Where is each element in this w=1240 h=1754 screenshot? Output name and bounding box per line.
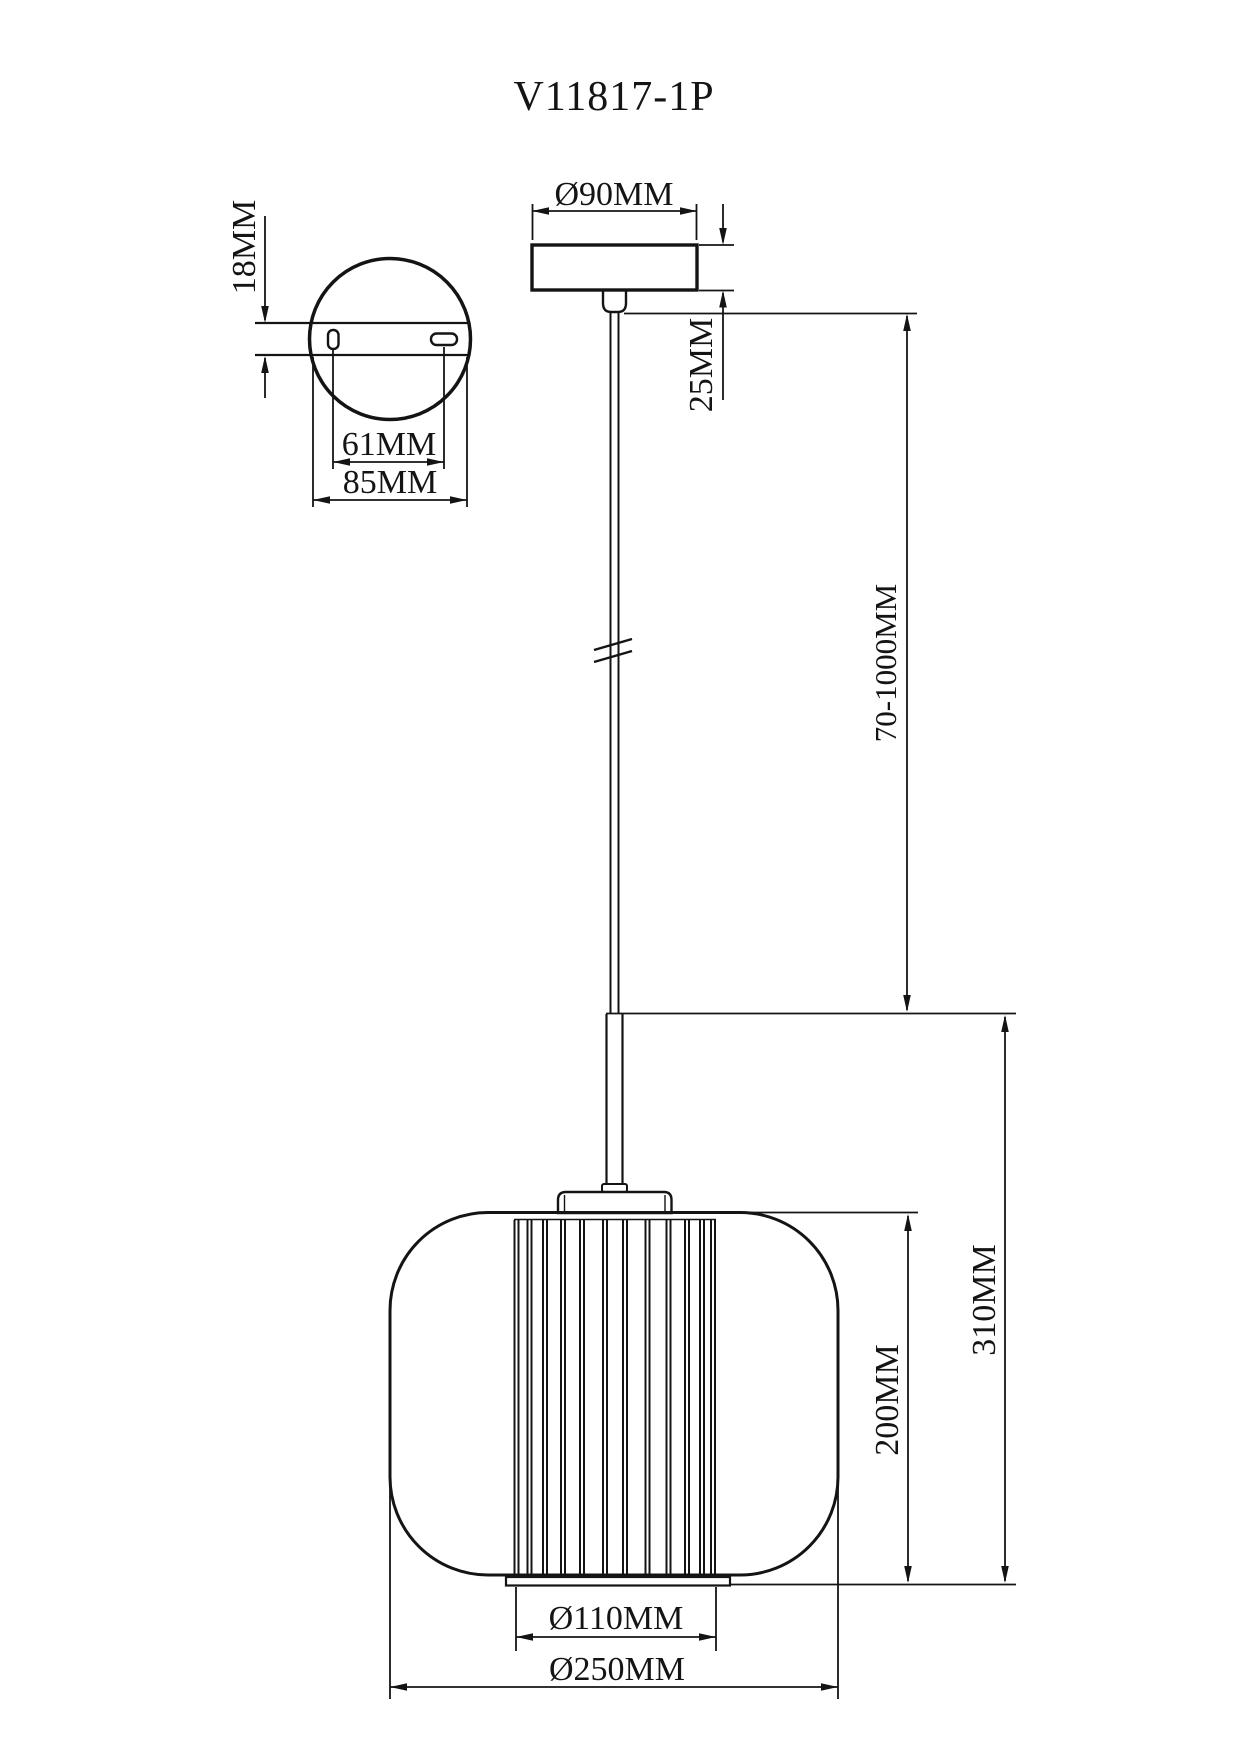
rod-break-mark-upper <box>594 639 632 650</box>
dim-label-shade-diameter: Ø250MM <box>549 1651 685 1688</box>
dim-label-canopy-diameter: Ø90MM <box>554 176 673 213</box>
dim-arrowhead <box>904 1566 912 1583</box>
dim-arrowhead <box>390 1683 407 1691</box>
canopy-stem-connector <box>603 290 626 312</box>
canopy-body <box>532 245 697 290</box>
dim-label-canopy-height: 25MM <box>683 318 720 412</box>
dim-label-plate-thickness: 18MM <box>226 200 263 294</box>
rod-break-mark-lower <box>594 651 632 662</box>
dim-arrowhead <box>904 1214 912 1231</box>
cylinder-bottom-rim <box>506 1577 730 1586</box>
dim-arrowhead <box>719 291 727 308</box>
dim-arrowhead <box>680 207 697 215</box>
shade-outline <box>390 1213 838 1576</box>
dim-label-inner-diameter: Ø110MM <box>549 1600 684 1637</box>
dim-arrowhead <box>313 496 330 504</box>
dim-label-slot-spacing: 61MM <box>342 426 436 463</box>
dim-label-glass-height: 200MM <box>869 1344 906 1455</box>
mounting-plate-top-view <box>255 259 471 420</box>
dim-label-suspension-length: 70-1000MM <box>868 584 903 742</box>
model-number: V11817-1P <box>513 74 714 120</box>
dim-label-plate-width: 85MM <box>343 464 437 501</box>
shade-front-view <box>390 1014 1016 1586</box>
dim-arrowhead <box>699 1633 716 1641</box>
mount-slot-left <box>328 330 339 349</box>
dim-arrowhead <box>1001 1015 1009 1032</box>
canopy-front-view <box>532 245 697 1013</box>
pendant-lamp-dimension-drawing: V11817-1P 18MM 61MM 85MM <box>0 0 1240 1754</box>
dim-arrowhead <box>903 314 911 331</box>
lamp-holder-cap <box>558 1192 672 1213</box>
dim-arrowhead <box>516 1633 533 1641</box>
dim-arrowhead <box>903 995 911 1012</box>
dim-arrowhead <box>821 1683 838 1691</box>
technical-drawing-page: V11817-1P 18MM 61MM 85MM <box>0 0 1240 1754</box>
dim-arrowhead <box>261 306 269 323</box>
dim-arrowhead <box>719 228 727 245</box>
dim-arrowhead <box>1001 1566 1009 1583</box>
mount-slot-right <box>431 334 457 346</box>
dim-label-fixture-height: 310MM <box>966 1244 1003 1355</box>
fluted-glass-cylinder <box>515 1220 716 1576</box>
dim-arrowhead <box>532 207 549 215</box>
dim-arrowhead <box>450 496 467 504</box>
dim-arrowhead <box>261 356 269 373</box>
